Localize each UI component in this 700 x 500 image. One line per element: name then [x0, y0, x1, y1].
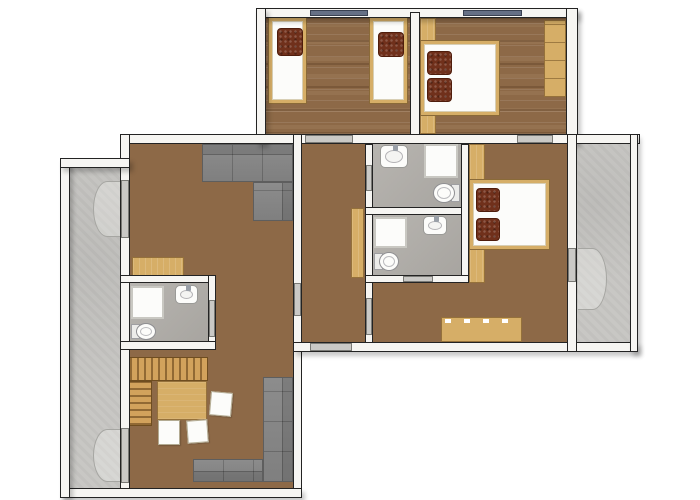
toilet-seat-ring — [383, 256, 395, 267]
door-hallway-to-bedroom-middle — [366, 298, 372, 335]
door-swing-arc — [93, 429, 122, 482]
window — [310, 10, 368, 16]
hallway-cabinet — [351, 208, 364, 278]
dining-chair — [186, 419, 209, 443]
pillow — [476, 188, 500, 212]
wall-top-block-right — [566, 8, 578, 144]
sofa-lower-horizontal — [193, 459, 263, 482]
wall-balcony-right-outer — [630, 134, 638, 352]
double-bed-middle — [469, 179, 550, 250]
wall-bedroom-balcony — [567, 134, 577, 352]
sink-bathroom-middle — [423, 216, 447, 235]
toilet-bathroom-left — [131, 323, 156, 340]
door-entrance — [310, 343, 352, 351]
wall-bottom — [60, 488, 302, 498]
shower-bathroom-top — [424, 144, 458, 178]
door-balcony-right — [568, 248, 576, 282]
dining-bench-top — [129, 357, 208, 381]
living-shelf — [132, 257, 184, 277]
wall-top-bedrooms-divider — [410, 12, 420, 144]
wall-bathroom-left-bottom — [120, 341, 216, 350]
toilet-seat-ring — [437, 187, 451, 199]
pillow — [427, 51, 452, 75]
faucet-icon — [434, 216, 439, 222]
wall-bathrooms-right — [461, 144, 469, 283]
wall-living-right — [293, 134, 302, 498]
door-living-to-hallway — [294, 283, 301, 316]
wall-bathrooms-divider — [365, 207, 469, 215]
wardrobe-top-right — [544, 20, 566, 97]
sideboard-handles — [445, 319, 518, 323]
door-bathroom-left — [209, 300, 215, 337]
shower-bathroom-middle — [374, 217, 407, 248]
door-swing-arc — [93, 181, 122, 237]
door-swing-arc — [578, 248, 607, 310]
door-bathroom-middle — [403, 276, 433, 282]
toilet-bathroom-middle — [374, 252, 399, 271]
dining-chair — [209, 391, 233, 417]
pillow — [277, 28, 303, 56]
sink-bathroom-top — [380, 145, 408, 168]
door-hallway-to-bathroom-top — [366, 165, 372, 191]
dining-bench-side — [129, 381, 152, 426]
pillow — [476, 218, 500, 241]
sideboard — [441, 317, 522, 342]
window — [463, 10, 522, 16]
sofa-upper-horizontal — [202, 144, 293, 182]
faucet-icon — [186, 285, 191, 291]
shower-bathroom-left — [131, 286, 164, 319]
wall-middle-band — [120, 134, 640, 144]
sink-basin — [385, 150, 403, 163]
single-bed-2 — [369, 17, 408, 104]
door-balcony-left-upper — [121, 180, 129, 238]
wall-balcony-left-outer — [60, 158, 70, 498]
balcony-right-floor — [577, 144, 630, 342]
sofa-upper-vertical — [253, 182, 293, 221]
double-bed-top — [420, 40, 500, 116]
faucet-icon — [393, 145, 398, 151]
toilet-bowl — [379, 252, 399, 271]
toilet-bowl — [136, 323, 156, 340]
wall-bathroom-left-top — [120, 275, 216, 283]
sink-basin — [428, 221, 442, 230]
floor-plan-canvas — [0, 0, 700, 500]
toilet-bathroom-top — [433, 183, 460, 203]
door-hallway-to-bedroom-top-left — [305, 135, 353, 143]
sink-basin — [180, 290, 193, 299]
sofa-lower-vertical — [263, 377, 293, 482]
door-balcony-left-lower — [121, 428, 129, 483]
wall-top-block-left — [256, 8, 266, 144]
pillow — [378, 32, 404, 57]
single-bed-1 — [268, 17, 307, 104]
dining-chair — [158, 420, 180, 445]
toilet-seat-ring — [140, 327, 152, 336]
wall-balcony-left-top — [60, 158, 130, 168]
pillow — [427, 78, 452, 102]
toilet-bowl — [433, 183, 455, 203]
door-bedrooms-connecting — [517, 135, 553, 143]
dining-table — [157, 381, 207, 420]
sink-bathroom-left — [175, 285, 198, 304]
